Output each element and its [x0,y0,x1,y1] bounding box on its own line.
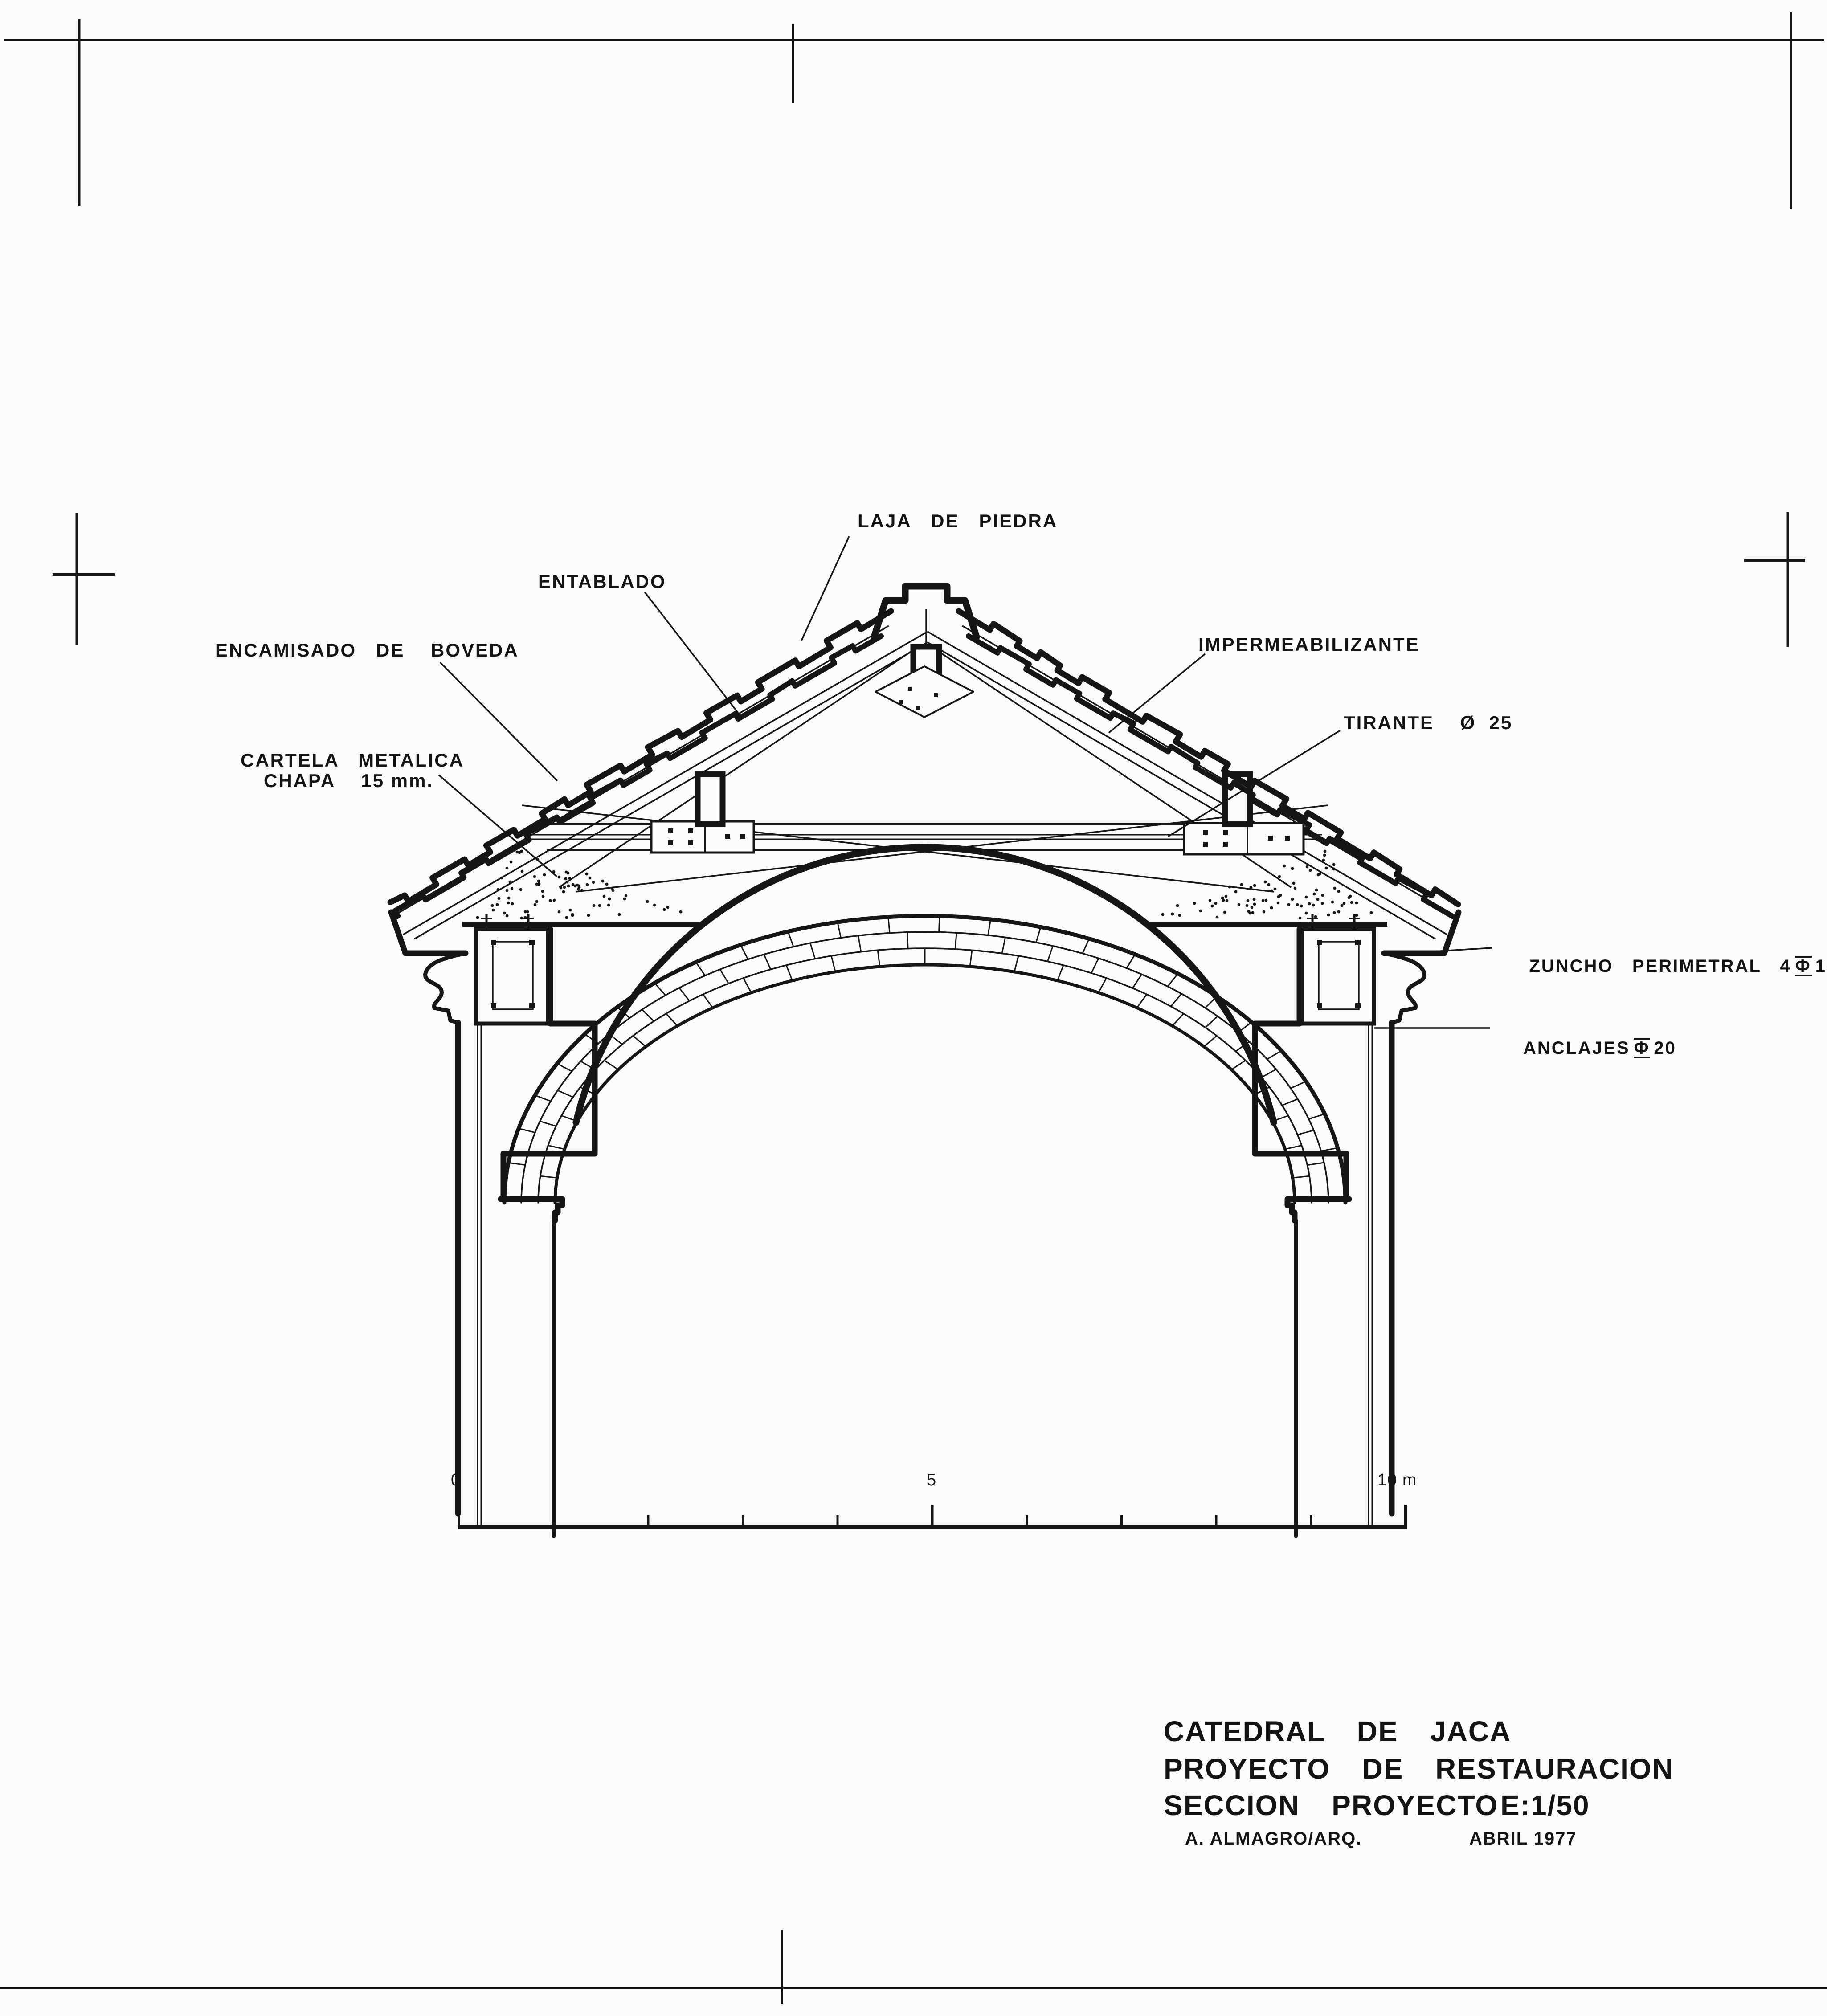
label-encamisado-de-boveda: ENCAMISADO DE BOVEDA [215,640,519,661]
scale-tick-5: 5 [927,1471,936,1490]
label-entablado: ENTABLADO [538,571,666,592]
label-laja-de-piedra: LAJA DE PIEDRA [858,511,1058,531]
title-sheet-name: SECCION PROYECTO [1164,1789,1498,1822]
scale-tick-10m: 10 m [1377,1471,1417,1490]
scale-tick-0: 0 [451,1471,461,1490]
title-author: A. ALMAGRO/ARQ. [1185,1829,1362,1849]
anclajes-size: 20 [1654,1038,1676,1058]
zuncho-text: ZUNCHO PERIMETRAL 4 [1529,956,1791,976]
section-drawing [0,12,1827,2004]
title-project-name: CATEDRAL DE JACA [1164,1715,1511,1748]
title-project-type: PROYECTO DE RESTAURACION [1164,1752,1674,1785]
drawing-sheet: LAJA DE PIEDRA ENTABLADO ENCAMISADO DE B… [0,0,1827,2016]
title-date: ABRIL 1977 [1469,1829,1577,1849]
zuncho-size: 14 [1815,956,1827,976]
label-zuncho-perimetral: ZUNCHO PERIMETRAL 4Φ14 [1504,936,1827,996]
title-scale: E:1/50 [1500,1789,1590,1822]
label-anclajes: ANCLAJESΦ20 [1499,1018,1676,1078]
rebar-diameter-icon: Φ [1634,1038,1651,1058]
label-cartela-metalica: CARTELA METALICA [241,750,464,771]
label-impermeabilizante: IMPERMEABILIZANTE [1198,634,1420,655]
rebar-diameter-icon: Φ [1795,956,1812,976]
label-chapa-15mm: CHAPA 15 mm. [264,771,433,791]
section-linework [0,0,1827,2016]
anclajes-text: ANCLAJES [1523,1038,1630,1058]
label-tirante: TIRANTE Ø 25 [1344,713,1512,733]
